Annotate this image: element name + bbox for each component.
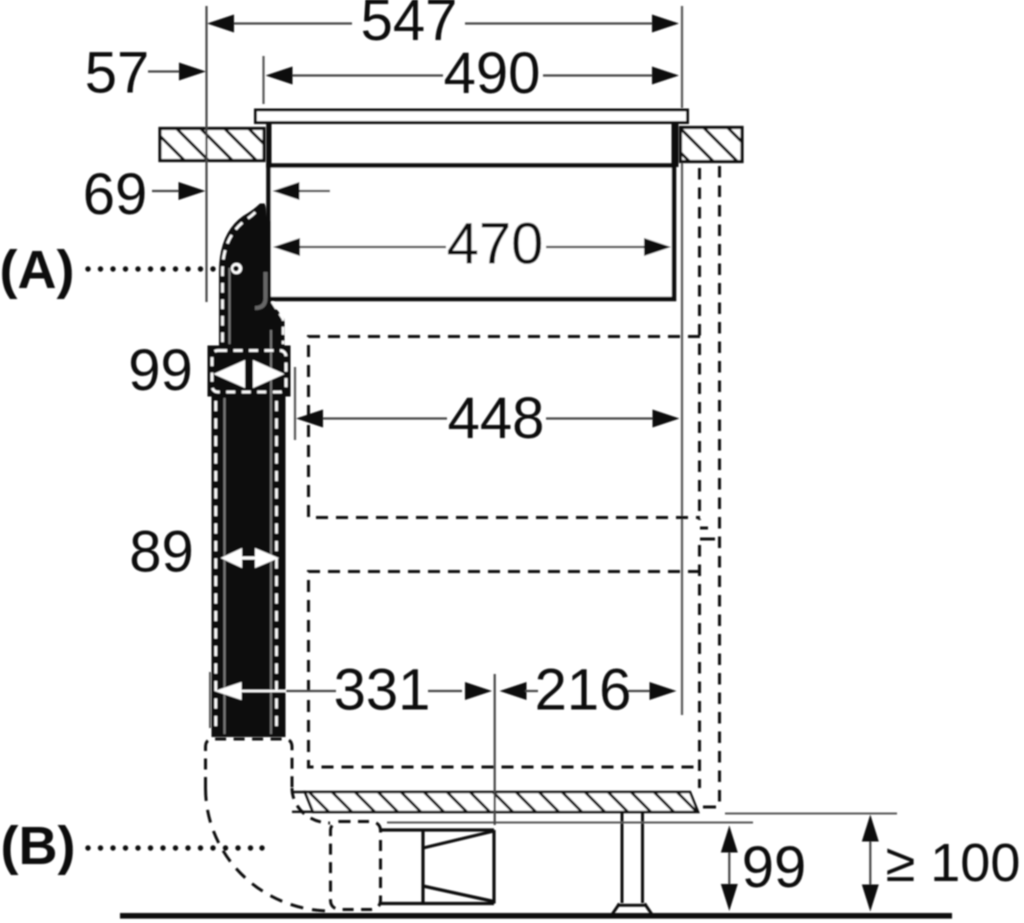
svg-text:89: 89 bbox=[129, 520, 194, 585]
svg-text:(B): (B) bbox=[1, 816, 76, 876]
svg-text:331: 331 bbox=[334, 658, 431, 723]
svg-text:(A): (A) bbox=[0, 240, 74, 300]
svg-text:216: 216 bbox=[535, 658, 632, 723]
svg-text:470: 470 bbox=[447, 212, 544, 277]
svg-text:69: 69 bbox=[83, 162, 148, 227]
svg-text:≥ 100: ≥ 100 bbox=[886, 833, 1021, 893]
svg-text:57: 57 bbox=[85, 41, 150, 106]
svg-text:490: 490 bbox=[444, 41, 541, 106]
svg-text:99: 99 bbox=[742, 835, 807, 900]
svg-text:448: 448 bbox=[448, 386, 545, 451]
svg-text:99: 99 bbox=[128, 338, 193, 403]
